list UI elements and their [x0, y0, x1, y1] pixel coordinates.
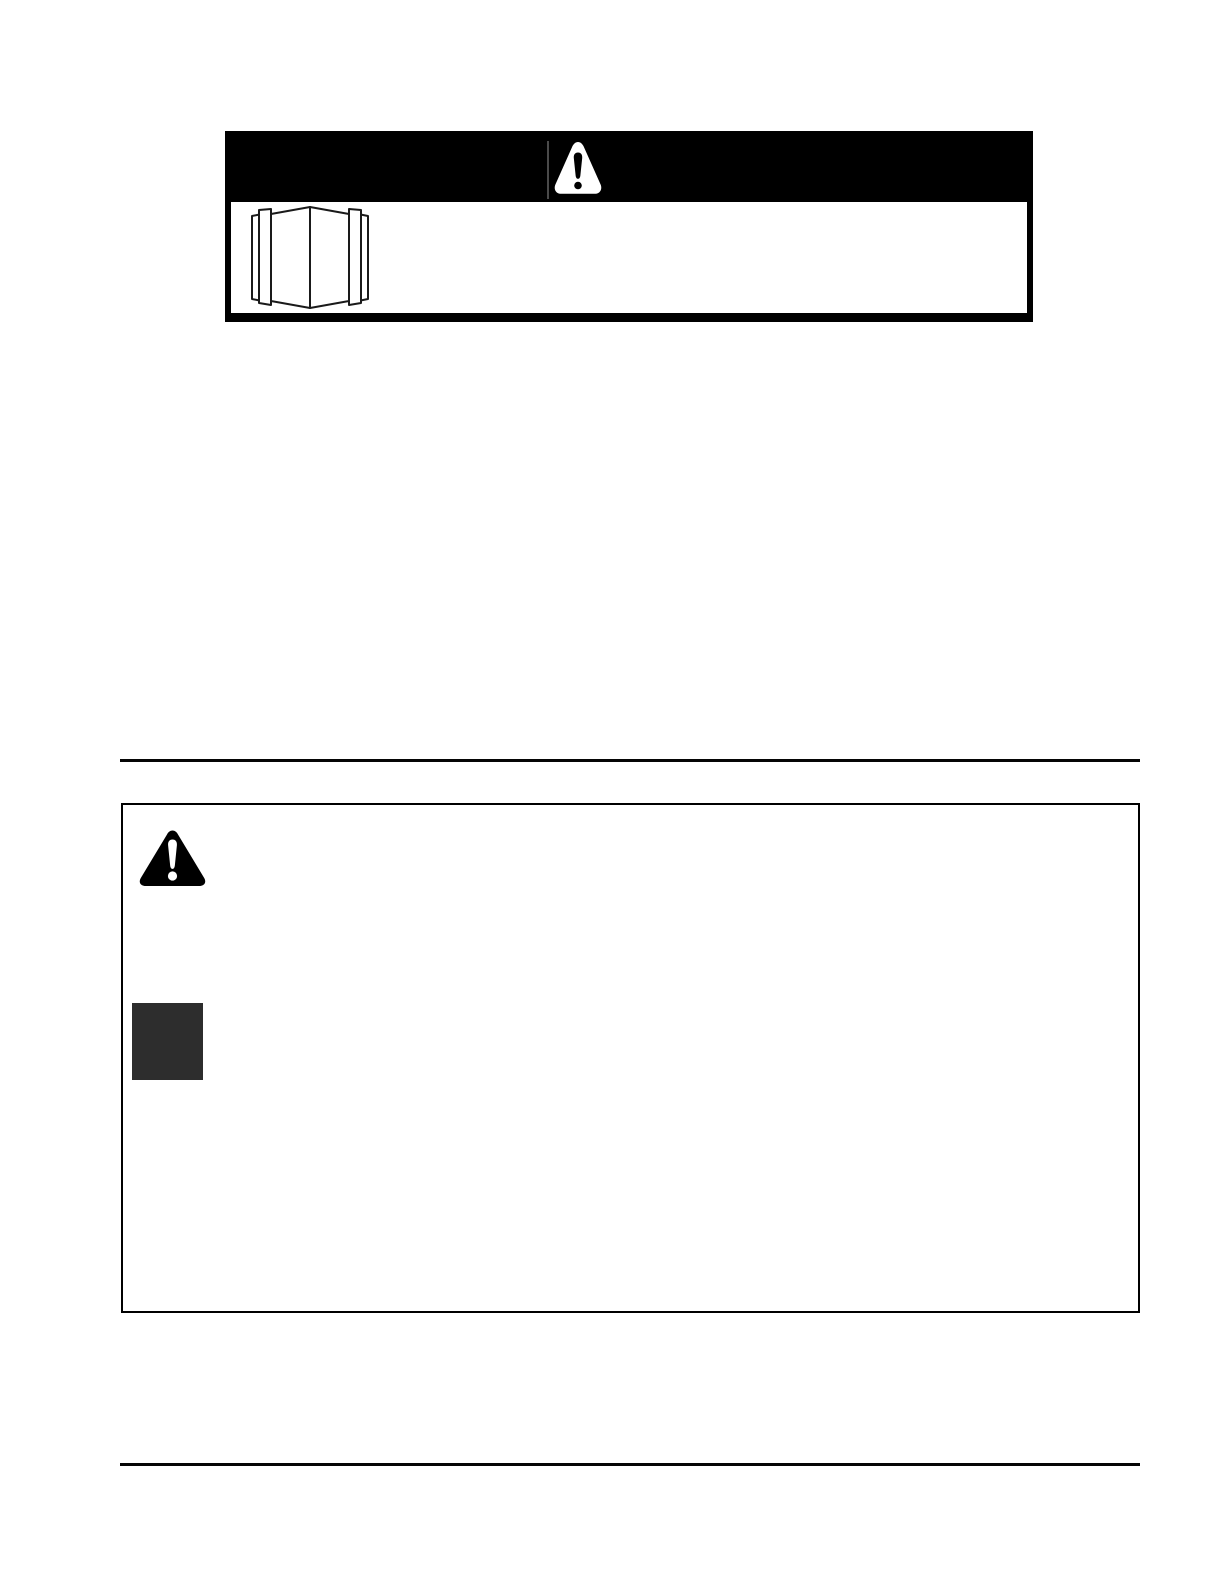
exclamation-dot — [168, 871, 177, 880]
book-page-edge-left-inner — [259, 209, 271, 305]
book-right-page — [310, 207, 349, 308]
horizontal-rule-bottom — [120, 1463, 1140, 1466]
safety-box — [121, 803, 1140, 1313]
warning-box-body — [231, 202, 1027, 313]
horizontal-rule-top — [120, 759, 1140, 762]
alert-triangle-icon — [138, 828, 207, 888]
top-warning-box — [225, 131, 1033, 322]
alert-triangle-icon — [553, 139, 603, 197]
dark-square-marker — [132, 1003, 203, 1080]
warning-banner — [231, 137, 1027, 202]
open-book-icon — [250, 204, 370, 310]
book-page-edge-right-inner — [349, 209, 361, 305]
exclamation-dot — [574, 182, 582, 190]
manual-page — [0, 0, 1225, 1585]
banner-seam-divider — [547, 141, 549, 199]
book-left-page — [271, 207, 310, 308]
